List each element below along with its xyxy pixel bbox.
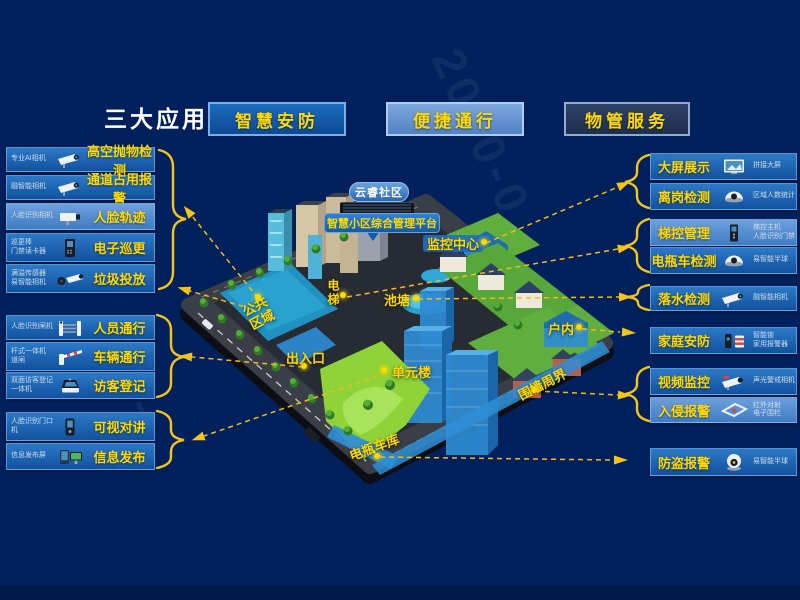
map-dot bbox=[531, 387, 537, 393]
device-label: 区域人数统计 bbox=[751, 192, 796, 200]
device-label: 红外对射 电子围栏 bbox=[751, 402, 796, 419]
left-item-electronic-patrol[interactable]: 巡更棒 门禁读卡器 电子巡更 bbox=[6, 233, 155, 262]
device-label: 人脸识别闸机 bbox=[7, 323, 53, 331]
device-label: 双面访客登记 一体机 bbox=[7, 377, 53, 394]
page-title: 三大应用 bbox=[104, 100, 208, 134]
left-item-channel-occupancy-alarm[interactable]: 融智能相机 通道占用报警 bbox=[6, 175, 155, 200]
dome-camera-icon bbox=[719, 251, 749, 271]
device-label: 拼接大屏 bbox=[751, 162, 796, 170]
smart-lock-alarm-icon bbox=[719, 331, 749, 351]
feature-label: 梯控管理 bbox=[651, 223, 717, 242]
device-label: 人脸识别相机 bbox=[7, 212, 53, 220]
feature-label: 离岗检测 bbox=[651, 187, 717, 206]
feature-label: 防盗报警 bbox=[651, 453, 717, 472]
left-item-vehicle-access[interactable]: 杆式一体机 道闸 车辆通行 bbox=[6, 342, 155, 371]
turnstile-icon bbox=[55, 318, 85, 338]
map-dot bbox=[481, 239, 487, 245]
map-dot bbox=[301, 363, 307, 369]
app-button-convenient-access[interactable]: 便捷通行 bbox=[386, 102, 524, 136]
left-item-visitor-registration[interactable]: 双面访客登记 一体机 访客登记 bbox=[6, 372, 155, 399]
card-reader-icon bbox=[55, 238, 85, 258]
feature-label: 人员通行 bbox=[87, 318, 154, 337]
feature-label: 访客登记 bbox=[87, 376, 154, 395]
left-item-face-trajectory[interactable]: 人脸识别相机 人脸轨迹 bbox=[6, 203, 155, 230]
feature-label: 人脸轨迹 bbox=[87, 207, 154, 226]
bullet-camera-icon bbox=[55, 178, 85, 198]
device-label: 融智能相机 bbox=[751, 294, 796, 302]
visitor-terminal-icon bbox=[55, 376, 85, 396]
device-label: 满溢传感器 易智能相机 bbox=[7, 270, 53, 287]
right-item-away-from-post-detection[interactable]: 离岗检测 区域人数统计 bbox=[650, 183, 797, 210]
bottom-bar bbox=[0, 585, 800, 600]
smart-community-dashboard: 2020-0 33- bbox=[0, 0, 800, 600]
feature-label: 入侵报警 bbox=[651, 401, 717, 420]
map-area-unit-building[interactable]: 单元楼 bbox=[392, 362, 431, 381]
device-label: 信息发布屏 bbox=[7, 452, 53, 460]
turret-camera-icon bbox=[719, 452, 749, 472]
map-dot bbox=[374, 453, 380, 459]
right-item-e-bike-detection[interactable]: 电瓶车检测 易智能半球 bbox=[650, 247, 797, 274]
feature-label: 家庭安防 bbox=[651, 331, 717, 350]
map-dot bbox=[255, 294, 261, 300]
map-dot bbox=[413, 295, 419, 301]
bullet-camera-icon bbox=[55, 150, 85, 170]
app-button-property-service[interactable]: 物管服务 bbox=[564, 102, 690, 136]
left-item-personnel-access[interactable]: 人脸识别闸机 人员通行 bbox=[6, 315, 155, 340]
left-item-video-intercom[interactable]: 人脸识别门口 机 可视对讲 bbox=[6, 412, 155, 441]
map-dot bbox=[340, 292, 346, 298]
map-area-indoor[interactable]: 户内 bbox=[548, 319, 574, 338]
right-item-elevator-control[interactable]: 梯控管理 梯控主机 人脸识别门禁 bbox=[650, 219, 797, 246]
door-intercom-icon bbox=[55, 417, 85, 437]
device-label: 杆式一体机 道闸 bbox=[7, 348, 53, 365]
right-item-drowning-detection[interactable]: 落水检测 融智能相机 bbox=[650, 286, 797, 311]
device-label: 专业AI相机 bbox=[7, 155, 53, 163]
feature-label: 电子巡更 bbox=[87, 238, 154, 257]
dome-camera-icon bbox=[719, 187, 749, 207]
feature-label: 车辆通行 bbox=[87, 347, 154, 366]
sensor-camera-icon bbox=[55, 269, 85, 289]
map-area-monitoring-center[interactable]: 监控中心 bbox=[423, 235, 483, 252]
community-name-pill: 云睿社区 bbox=[349, 182, 409, 202]
barrier-gate-icon bbox=[55, 347, 85, 367]
device-label: 梯控主机 人脸识别门禁 bbox=[751, 224, 796, 241]
video-wall-icon bbox=[719, 157, 749, 177]
device-label: 易智能半球 bbox=[751, 256, 796, 264]
right-item-home-security[interactable]: 家庭安防 智能锁 家用报警器 bbox=[650, 327, 797, 354]
feature-label: 信息发布 bbox=[87, 447, 154, 466]
right-item-big-screen-display[interactable]: 大屏展示 拼接大屏 bbox=[650, 153, 797, 180]
feature-label: 落水检测 bbox=[651, 289, 717, 308]
fence-icon bbox=[719, 400, 749, 420]
info-screens-icon bbox=[55, 447, 85, 467]
feature-label: 视频监控 bbox=[651, 372, 717, 391]
feature-label: 垃圾投放 bbox=[87, 269, 154, 288]
right-item-anti-theft-alarm[interactable]: 防盗报警 易智能半球 bbox=[650, 448, 797, 476]
app-button-smart-security[interactable]: 智慧安防 bbox=[208, 102, 346, 136]
left-item-garbage-disposal[interactable]: 满溢传感器 易智能相机 垃圾投放 bbox=[6, 264, 155, 293]
feature-label: 可视对讲 bbox=[87, 417, 154, 436]
box-camera-icon bbox=[55, 207, 85, 227]
device-label: 声光警戒相机 bbox=[751, 377, 796, 385]
map-dot bbox=[576, 324, 582, 330]
device-label: 巡更棒 门禁读卡器 bbox=[7, 239, 53, 256]
feature-label: 大屏展示 bbox=[651, 157, 717, 176]
device-label: 人脸识别门口 机 bbox=[7, 418, 53, 435]
feature-label: 电瓶车检测 bbox=[651, 251, 717, 270]
elevator-panel-icon bbox=[719, 223, 749, 243]
platform-banner: 智慧小区综合管理平台 bbox=[324, 213, 440, 233]
left-item-info-publish[interactable]: 信息发布屏 信息发布 bbox=[6, 443, 155, 470]
map-dot bbox=[381, 367, 387, 373]
device-label: 易智能半球 bbox=[751, 458, 796, 466]
alert-bullet-camera-icon bbox=[719, 372, 749, 392]
bullet-camera-icon bbox=[719, 289, 749, 309]
device-label: 融智能相机 bbox=[7, 183, 53, 191]
right-item-intrusion-alarm[interactable]: 入侵报警 红外对射 电子围栏 bbox=[650, 397, 797, 423]
feature-label: 通道占用报警 bbox=[87, 169, 154, 207]
device-label: 智能锁 家用报警器 bbox=[751, 332, 796, 349]
right-item-video-surveillance[interactable]: 视频监控 声光警戒相机 bbox=[650, 368, 797, 395]
map-area-pond[interactable]: 池塘 bbox=[384, 290, 410, 309]
